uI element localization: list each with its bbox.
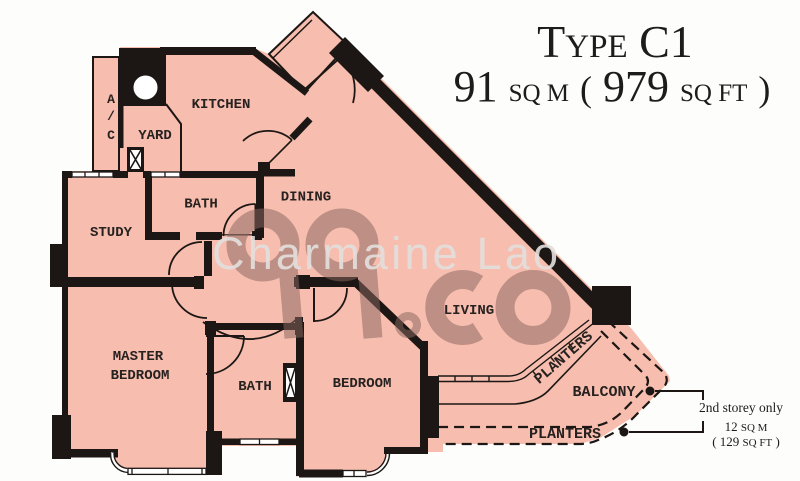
svg-text:PLANTERS: PLANTERS	[529, 426, 601, 443]
svg-text:BATH: BATH	[184, 197, 218, 213]
svg-text:91 SQ M ( 979 SQ FT ): 91 SQ M ( 979 SQ FT )	[454, 62, 771, 111]
svg-text:2nd storey only: 2nd storey only	[699, 400, 783, 415]
svg-text:DINING: DINING	[281, 190, 331, 206]
svg-text:KITCHEN: KITCHEN	[192, 97, 251, 113]
svg-text:( 129 SQ FT ): ( 129 SQ FT )	[712, 434, 780, 449]
svg-text:YARD: YARD	[138, 128, 172, 144]
svg-text:LIVING: LIVING	[444, 303, 494, 319]
svg-text:BEDROOM: BEDROOM	[111, 368, 170, 384]
svg-text:BEDROOM: BEDROOM	[333, 376, 392, 392]
svg-text:STUDY: STUDY	[90, 225, 133, 241]
svg-text:C: C	[107, 128, 115, 143]
svg-text:BATH: BATH	[238, 379, 272, 395]
svg-text:BALCONY: BALCONY	[572, 384, 635, 401]
svg-text:12 SQ M: 12 SQ M	[725, 419, 768, 434]
svg-text:TYPE C1: TYPE C1	[537, 16, 693, 67]
svg-text:MASTER: MASTER	[113, 349, 164, 365]
svg-text:Charmaine Lao: Charmaine Lao	[212, 228, 561, 279]
svg-text:A: A	[107, 92, 115, 107]
svg-text:/: /	[107, 109, 115, 124]
